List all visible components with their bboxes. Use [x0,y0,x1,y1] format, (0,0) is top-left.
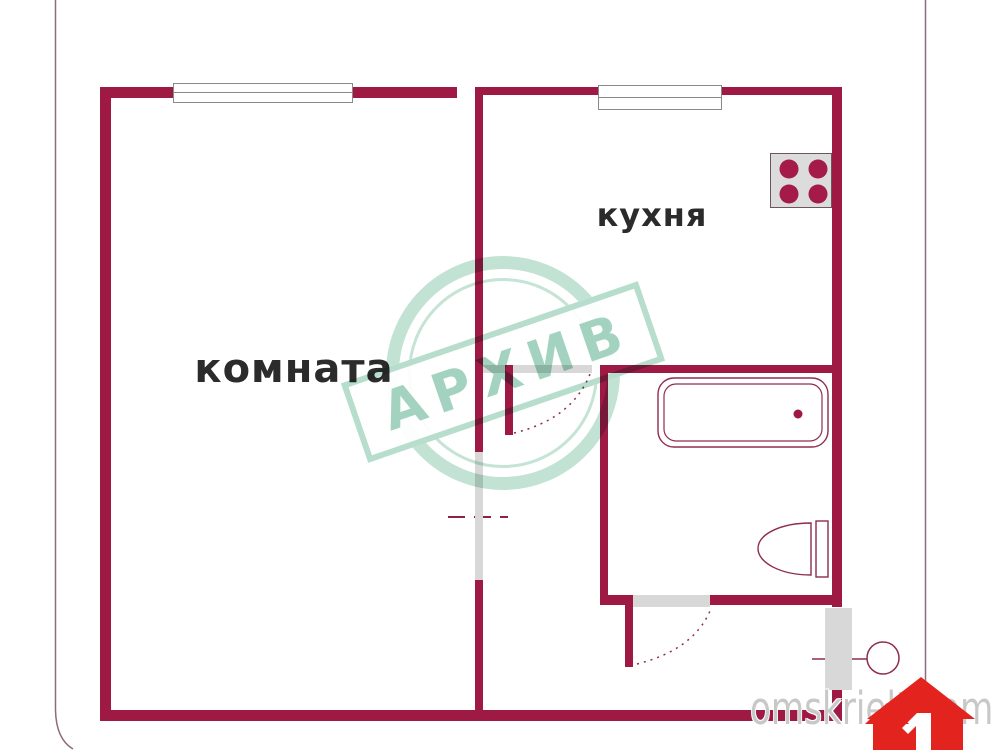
wall-bathroom-left [600,373,608,605]
stove-icon [770,153,832,208]
kitchen-door-leaf [505,365,513,435]
wall-left [100,87,111,721]
page-border-left [56,0,74,749]
hall-kitchen-opening [483,365,592,373]
wall-bottom [100,710,842,721]
entry-knob-circle [867,642,899,674]
stove-burner-icon [780,160,799,179]
window-kitchen-midline [599,97,721,98]
room-label: комната [194,346,393,392]
kitchen-door-swing-arc [514,374,590,433]
window-room [173,83,353,103]
bathroom-door-leaf [625,605,633,667]
wall-room-divider-top [475,87,483,452]
stove-burner-icon [780,185,799,204]
wall-right [832,87,842,607]
entry-door [825,608,852,690]
bathroom-door-swing-arc [637,611,710,664]
wall-top-kitchen-left [475,87,598,95]
bathroom-door-opening [633,595,710,607]
wall-top-kitchen-right [722,87,842,95]
window-room-midline [174,92,352,93]
wall-bathroom-bottom-left [600,595,633,605]
wall-room-divider-bottom [475,580,483,721]
stove-burner-icon [809,185,828,204]
bathtub-drain-icon [794,410,803,419]
room-divider-opening [475,452,483,580]
stove-burner-icon [809,160,828,179]
toilet-bowl-icon [758,523,811,575]
site-logo-house-icon [853,674,993,750]
bathtub-icon [658,378,828,447]
kitchen-label: кухня [597,196,708,234]
floor-plan-page: комната кухня АРХИВ omskrielt.com [0,0,1000,750]
window-kitchen [598,85,722,110]
wall-kitchen-bathroom [600,365,842,373]
wall-bathroom-bottom-right [710,595,842,605]
toilet-tank-icon [816,521,828,577]
